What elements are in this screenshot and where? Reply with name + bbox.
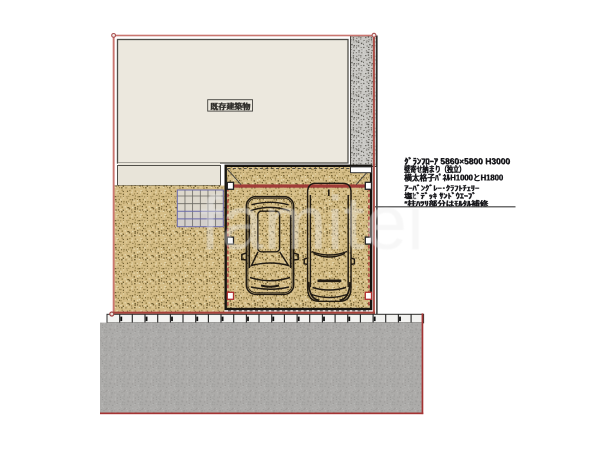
svg-text:壁寄せ納まり（独立）: 壁寄せ納まり（独立） xyxy=(404,164,465,174)
svg-text:既存建築物: 既存建築物 xyxy=(211,101,252,111)
svg-text:famitei: famitei xyxy=(200,181,424,266)
